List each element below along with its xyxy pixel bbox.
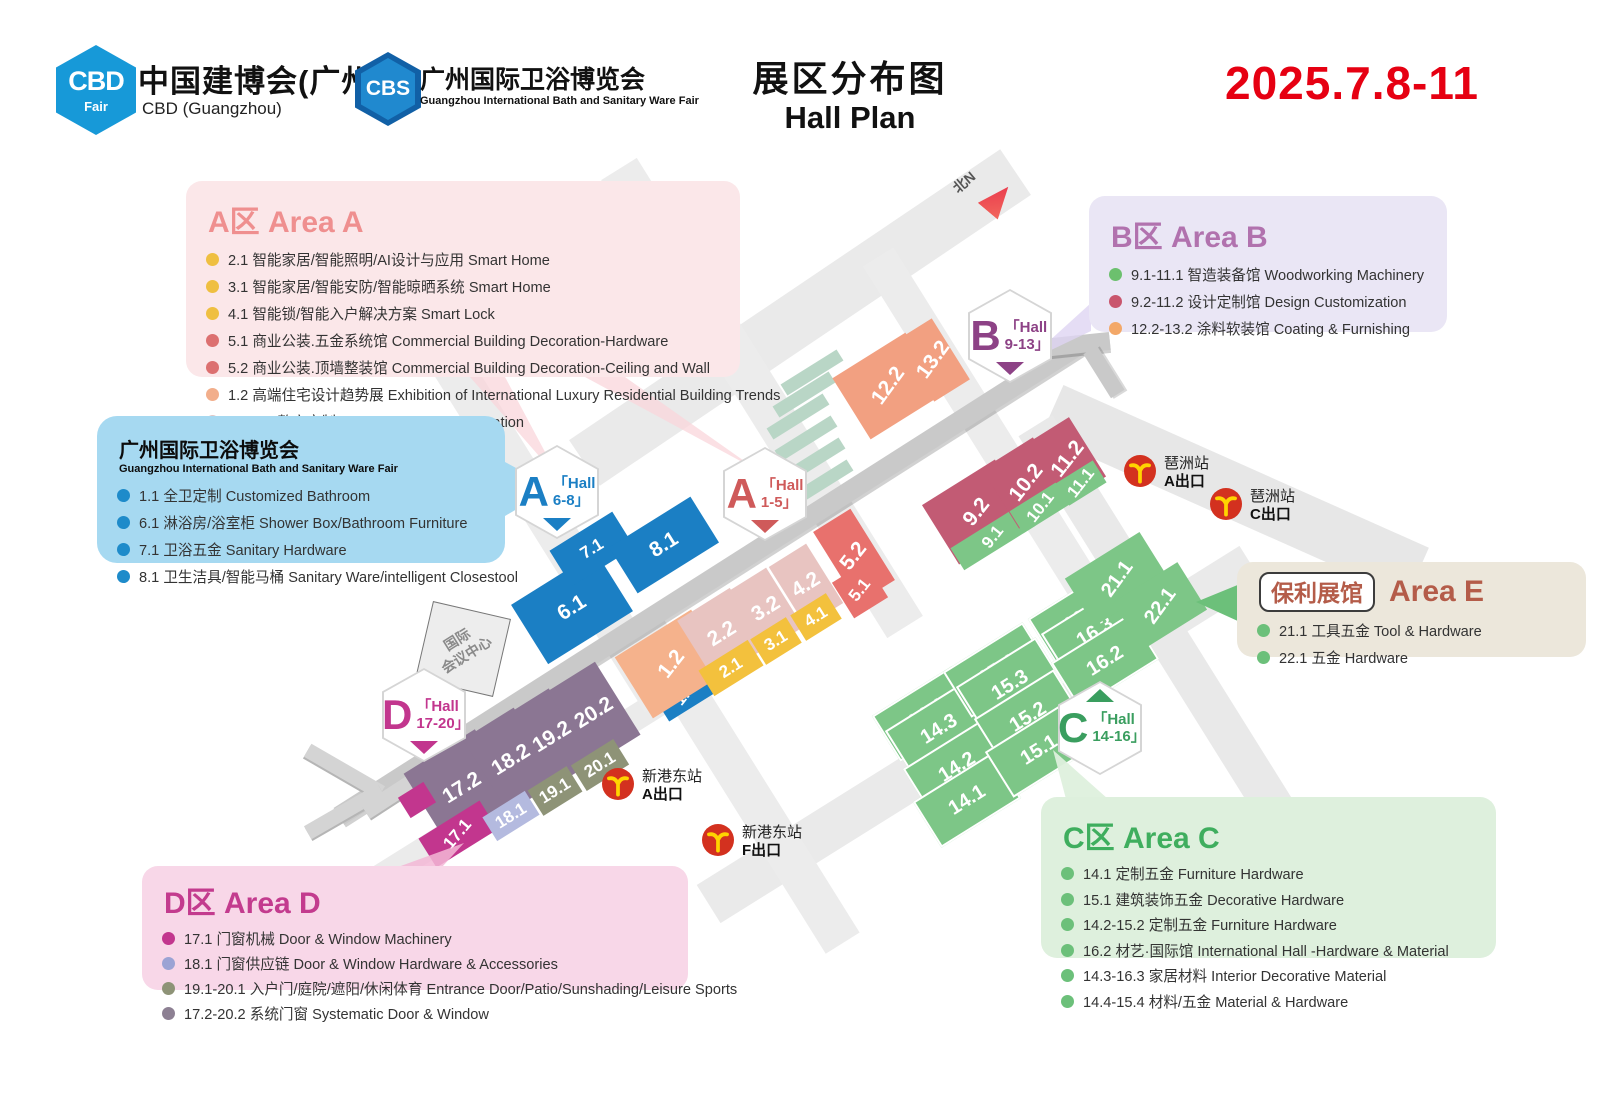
hall-label: 4.1 bbox=[801, 602, 832, 631]
hall-badge-a-1-5: A「Hall1-5」 bbox=[723, 447, 807, 541]
hall-plan-poster: 北N 国际 会议中心 6.17.18.11.11.22.23.24.22.13.… bbox=[0, 0, 1597, 1116]
legend-item: 16.2 材艺·国际馆 International Hall -Hardware… bbox=[1061, 940, 1476, 961]
legend-dot-icon bbox=[162, 957, 175, 970]
hall-label: 14.1 bbox=[944, 780, 989, 820]
legend-item: 9.1-11.1 智造装备馆 Woodworking Machinery bbox=[1109, 264, 1427, 285]
legend-item-label: 21.1 工具五金 Tool & Hardware bbox=[1279, 620, 1482, 641]
legend-item-label: 14.2-15.2 定制五金 Furniture Hardware bbox=[1083, 914, 1337, 935]
legend-dot-icon bbox=[162, 982, 175, 995]
hall-label: 6.1 bbox=[553, 590, 590, 626]
legend-item-label: 5.2 商业公装.顶墙整装馆 Commercial Building Decor… bbox=[228, 357, 710, 378]
metro-station-label: 琶洲站A出口 bbox=[1164, 455, 1209, 491]
legend-item-label: 1.1 全卫定制 Customized Bathroom bbox=[139, 485, 370, 506]
legend-item-label: 2.1 智能家居/智能照明/AI设计与应用 Smart Home bbox=[228, 249, 550, 270]
legend-dot-icon bbox=[1109, 322, 1122, 335]
legend-item-label: 14.4-15.4 材料/五金 Material & Hardware bbox=[1083, 991, 1348, 1012]
legend-item: 17.1 门窗机械 Door & Window Machinery bbox=[162, 928, 668, 949]
metro-station-label: 琶洲站C出口 bbox=[1250, 488, 1295, 524]
legend-item: 5.2 商业公装.顶墙整装馆 Commercial Building Decor… bbox=[206, 357, 720, 378]
legend-item: 2.1 智能家居/智能照明/AI设计与应用 Smart Home bbox=[206, 249, 720, 270]
legend-dot-icon bbox=[1061, 995, 1074, 1008]
legend-item: 7.1 卫浴五金 Sanitary Hardware bbox=[117, 539, 485, 560]
metro-station-label: 新港东站A出口 bbox=[642, 768, 702, 804]
legend-item: 14.1 定制五金 Furniture Hardware bbox=[1061, 863, 1476, 884]
legend-dot-icon bbox=[206, 361, 219, 374]
metro-station-新港东站-A出口: 新港东站A出口 bbox=[602, 768, 702, 804]
legend-bath-fair: 广州国际卫浴博览会 Guangzhou International Bath a… bbox=[97, 416, 505, 563]
hall-label: 18.2 bbox=[487, 739, 534, 781]
legend-item-label: 17.2-20.2 系统门窗 Systematic Door & Window bbox=[184, 1003, 489, 1024]
hall-badge-a-6-8: A「Hall6-8」 bbox=[515, 445, 599, 539]
metro-station-新港东站-F出口: 新港东站F出口 bbox=[702, 824, 802, 860]
legend-bath-fair-subtitle: Guangzhou International Bath and Sanitar… bbox=[119, 463, 485, 475]
legend-dot-icon bbox=[1257, 651, 1270, 664]
legend-dot-icon bbox=[1061, 944, 1074, 957]
legend-dot-icon bbox=[206, 334, 219, 347]
legend-area-c: C区 Area C 14.1 定制五金 Furniture Hardware15… bbox=[1041, 797, 1496, 958]
legend-area-d-title: D区 Area D bbox=[164, 878, 668, 922]
legend-dot-icon bbox=[1061, 918, 1074, 931]
legend-dot-icon bbox=[162, 1007, 175, 1020]
badge-hall-range: 「Hall14-16」 bbox=[1092, 711, 1142, 746]
legend-area-a: A区 Area A 2.1 智能家居/智能照明/AI设计与应用 Smart Ho… bbox=[186, 181, 740, 377]
hall-badge-c-14-16: C「Hall14-16」 bbox=[1058, 681, 1142, 775]
legend-item: 18.1 门窗供应链 Door & Window Hardware & Acce… bbox=[162, 953, 668, 974]
legend-item: 14.3-16.3 家居材料 Interior Decorative Mater… bbox=[1061, 965, 1476, 986]
badge-hall-range: 「Hall1-5」 bbox=[761, 477, 804, 512]
cbd-logo-sub: Fair bbox=[84, 99, 108, 114]
legend-item-label: 5.1 商业公装.五金系统馆 Commercial Building Decor… bbox=[228, 330, 668, 351]
legend-area-a-title: A区 Area A bbox=[208, 197, 720, 241]
legend-item: 9.2-11.2 设计定制馆 Design Customization bbox=[1109, 291, 1427, 312]
hall-label: 8.1 bbox=[645, 527, 682, 563]
legend-item: 8.1 卫生洁具/智能马桶 Sanitary Ware/intelligent … bbox=[117, 566, 485, 587]
legend-item-label: 8.1 卫生洁具/智能马桶 Sanitary Ware/intelligent … bbox=[139, 566, 518, 587]
legend-item: 12.2-13.2 涂料软装馆 Coating & Furnishing bbox=[1109, 318, 1427, 339]
legend-dot-icon bbox=[1061, 867, 1074, 880]
legend-item-label: 4.1 智能锁/智能入户解决方案 Smart Lock bbox=[228, 303, 495, 324]
legend-item-label: 1.2 高端住宅设计趋势展 Exhibition of Internationa… bbox=[228, 384, 780, 405]
metro-station-label: 新港东站F出口 bbox=[742, 824, 802, 860]
legend-dot-icon bbox=[117, 516, 130, 529]
legend-item-label: 22.1 五金 Hardware bbox=[1279, 647, 1408, 668]
legend-area-e-title: Area E bbox=[1389, 575, 1484, 609]
legend-item: 5.1 商业公装.五金系统馆 Commercial Building Decor… bbox=[206, 330, 720, 351]
badge-letter: D bbox=[382, 694, 412, 736]
legend-item: 19.1-20.1 入户门/庭院/遮阳/休闲体育 Entrance Door/P… bbox=[162, 978, 668, 999]
legend-dot-icon bbox=[162, 932, 175, 945]
hall-label: 16.2 bbox=[1082, 641, 1127, 681]
cbd-logo-text: CBD bbox=[68, 66, 124, 97]
legend-area-e: 保利展馆 Area E 21.1 工具五金 Tool & Hardware22.… bbox=[1237, 562, 1586, 657]
legend-item-label: 3.1 智能家居/智能安防/智能晾晒系统 Smart Home bbox=[228, 276, 551, 297]
legend-dot-icon bbox=[206, 307, 219, 320]
badge-letter: B bbox=[970, 315, 1000, 357]
hall-label: 2.1 bbox=[716, 653, 747, 682]
legend-item-label: 9.1-11.1 智造装备馆 Woodworking Machinery bbox=[1131, 264, 1424, 285]
hall-label: 5.1 bbox=[845, 575, 875, 606]
cbd-logo: CBD Fair bbox=[56, 45, 136, 135]
legend-bath-fair-title: 广州国际卫浴博览会 bbox=[119, 434, 485, 463]
legend-item: 21.1 工具五金 Tool & Hardware bbox=[1257, 620, 1566, 641]
legend-dot-icon bbox=[1109, 268, 1122, 281]
legend-dot-icon bbox=[1061, 969, 1074, 982]
cbd-subtitle: CBD (Guangzhou) bbox=[142, 99, 282, 119]
badge-hall-range: 「Hall9-13」 bbox=[1005, 319, 1050, 354]
hall-label: 1.2 bbox=[654, 645, 691, 683]
legend-item-label: 15.1 建筑装饰五金 Decorative Hardware bbox=[1083, 889, 1344, 910]
legend-item-label: 18.1 门窗供应链 Door & Window Hardware & Acce… bbox=[184, 953, 558, 974]
legend-area-b: B区 Area B 9.1-11.1 智造装备馆 Woodworking Mac… bbox=[1089, 196, 1447, 332]
legend-item-label: 17.1 门窗机械 Door & Window Machinery bbox=[184, 928, 452, 949]
hall-badge-b-9-13: B「Hall9-13」 bbox=[968, 289, 1052, 383]
metro-station-琶洲站-A出口: 琶洲站A出口 bbox=[1124, 455, 1209, 491]
legend-area-c-title: C区 Area C bbox=[1063, 813, 1476, 857]
legend-dot-icon bbox=[117, 543, 130, 556]
hall-label: 17.1 bbox=[440, 815, 477, 853]
legend-item-label: 7.1 卫浴五金 Sanitary Hardware bbox=[139, 539, 347, 560]
legend-item-label: 14.1 定制五金 Furniture Hardware bbox=[1083, 863, 1304, 884]
cbs-logo-text: CBS bbox=[366, 77, 410, 101]
legend-item: 22.1 五金 Hardware bbox=[1257, 647, 1566, 668]
badge-hall-range: 「Hall17-20」 bbox=[416, 698, 466, 733]
hall-label: 20.2 bbox=[570, 692, 617, 734]
legend-dot-icon bbox=[117, 570, 130, 583]
cbs-subtitle: Guangzhou International Bath and Sanitar… bbox=[420, 95, 699, 107]
road-main-hook-v bbox=[1083, 346, 1124, 399]
legend-item: 1.1 全卫定制 Customized Bathroom bbox=[117, 485, 485, 506]
legend-item-label: 14.3-16.3 家居材料 Interior Decorative Mater… bbox=[1083, 965, 1386, 986]
legend-dot-icon bbox=[1109, 295, 1122, 308]
metro-icon bbox=[1124, 455, 1156, 487]
page-title-en: Hall Plan bbox=[750, 100, 950, 136]
legend-item-label: 9.2-11.2 设计定制馆 Design Customization bbox=[1131, 291, 1407, 312]
badge-hall-range: 「Hall6-8」 bbox=[553, 475, 596, 510]
event-date: 2025.7.8-11 bbox=[1225, 56, 1479, 110]
badge-letter: A bbox=[727, 473, 757, 515]
legend-item: 14.2-15.2 定制五金 Furniture Hardware bbox=[1061, 914, 1476, 935]
poly-hall-pill: 保利展馆 bbox=[1259, 572, 1375, 612]
legend-item: 3.1 智能家居/智能安防/智能晾晒系统 Smart Home bbox=[206, 276, 720, 297]
legend-area-d: D区 Area D 17.1 门窗机械 Door & Window Machin… bbox=[142, 866, 688, 990]
legend-item-label: 12.2-13.2 涂料软装馆 Coating & Furnishing bbox=[1131, 318, 1410, 339]
hall-label: 22.1 bbox=[1139, 583, 1180, 628]
legend-item: 6.1 淋浴房/浴室柜 Shower Box/Bathroom Furnitur… bbox=[117, 512, 485, 533]
hall-label: 3.1 bbox=[761, 626, 792, 655]
legend-dot-icon bbox=[206, 280, 219, 293]
metro-station-琶洲站-C出口: 琶洲站C出口 bbox=[1210, 488, 1295, 524]
badge-letter: A bbox=[519, 471, 549, 513]
metro-icon bbox=[602, 768, 634, 800]
hall-label: 15.1 bbox=[1016, 730, 1061, 770]
legend-item-label: 19.1-20.1 入户门/庭院/遮阳/休闲体育 Entrance Door/P… bbox=[184, 978, 737, 999]
metro-icon bbox=[1210, 488, 1242, 520]
legend-dot-icon bbox=[206, 253, 219, 266]
legend-dot-icon bbox=[1061, 893, 1074, 906]
legend-item: 1.2 高端住宅设计趋势展 Exhibition of Internationa… bbox=[206, 384, 720, 405]
legend-area-b-title: B区 Area B bbox=[1111, 212, 1427, 256]
hall-badge-d-17-20: D「Hall17-20」 bbox=[382, 668, 466, 762]
metro-icon bbox=[702, 824, 734, 856]
hall-label: 12.2 bbox=[866, 362, 909, 409]
legend-item-label: 16.2 材艺·国际馆 International Hall -Hardware… bbox=[1083, 940, 1449, 961]
page-title-cn: 展区分布图 bbox=[750, 50, 950, 102]
legend-dot-icon bbox=[206, 388, 219, 401]
cbd-title: 中国建博会(广州) bbox=[138, 56, 385, 101]
legend-item: 4.1 智能锁/智能入户解决方案 Smart Lock bbox=[206, 303, 720, 324]
legend-dot-icon bbox=[1257, 624, 1270, 637]
legend-item: 15.1 建筑装饰五金 Decorative Hardware bbox=[1061, 889, 1476, 910]
legend-item-label: 6.1 淋浴房/浴室柜 Shower Box/Bathroom Furnitur… bbox=[139, 512, 467, 533]
legend-item: 17.2-20.2 系统门窗 Systematic Door & Window bbox=[162, 1003, 668, 1024]
cbs-title: 广州国际卫浴博览会 bbox=[420, 60, 645, 96]
legend-item: 14.4-15.4 材料/五金 Material & Hardware bbox=[1061, 991, 1476, 1012]
badge-letter: C bbox=[1058, 707, 1088, 749]
legend-dot-icon bbox=[117, 489, 130, 502]
